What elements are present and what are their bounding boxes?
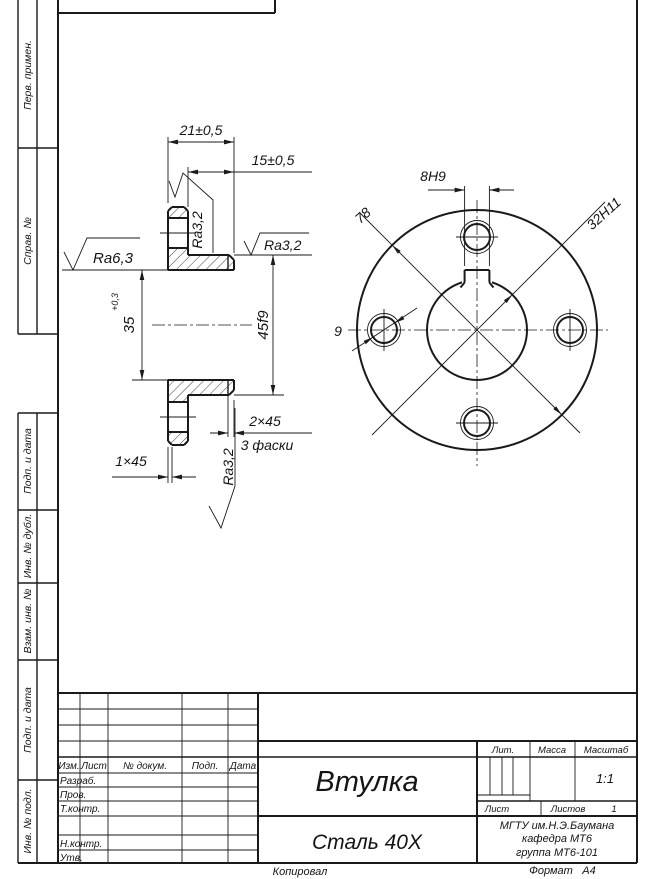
sheets-value: 1 [611,804,616,815]
roughness-hub: Ra3,2 [264,237,302,253]
sidebar-label: Справ. № [22,217,34,265]
format-value: А4 [581,865,595,877]
hatch-band-top [168,248,234,270]
title-block-text: Изм. Лист № докум. Подп. Дата Разраб. Пр… [58,745,629,878]
dim-bore-fit: 32H11 [583,194,624,233]
scale-value: 1:1 [596,771,614,786]
dim-bore-tolerance: +0,3 [110,293,120,311]
drawing-sheet: Перв. примен. Справ. № Подп. и дата Инв.… [0,0,647,879]
dim-chamfer-left: 1×45 [115,453,147,469]
copied-label: Копировал [273,866,328,878]
gost-drawing: Перв. примен. Справ. № Подп. и дата Инв.… [0,0,647,879]
sheet-label: Лист [484,804,510,815]
col-list: Лист [80,761,107,772]
format-label: Формат [529,865,573,877]
sidebar-label: Перв. примен. [22,40,34,110]
row-prov: Пров. [60,790,86,801]
sheets-label: Листов [550,804,586,815]
col-izm: Изм. [58,761,79,772]
scale-label: Масштаб [584,745,629,756]
row-nkontr: Н.контр. [60,839,102,850]
sidebar-label: Подп. и дата [22,687,34,753]
dim-chamfer-right: 2×45 [248,413,281,429]
row-tkontr: Т.контр. [60,804,100,815]
mass-label: Масса [538,745,566,756]
dim-hole-diameter: 9 [334,323,342,339]
dim-width-total: 21±0,5 [179,122,223,138]
dim-hub-length: 15±0,5 [252,152,295,168]
row-utv: Утв. [59,853,83,864]
front-view: 8H9 78 32H11 9 [334,168,624,466]
roughness-keyway: Ra3,2 [189,211,205,249]
part-name: Втулка [315,766,418,798]
col-data: Дата [229,761,257,772]
org-line-1: МГТУ им.Н.Э.Баумана [500,820,615,832]
roughness-left: Ra6,3 [93,250,134,267]
lit-label: Лит. [491,745,514,756]
sidebar-label: Инв. № подл. [22,788,34,853]
dim-hub-diameter: 45f9 [255,310,272,340]
sheet-frame [18,0,637,863]
dim-keyway-width: 8H9 [420,168,446,184]
hatch-band-bottom [168,380,234,402]
col-docnum: № докум. [123,761,167,772]
dim-chamfer-note: 3 фаски [241,437,294,453]
roughness-bore: Ra3,2 [220,448,236,486]
dim-bore-diameter: 35 [121,316,138,333]
material: Сталь 40Х [312,831,423,854]
sidebar-label: Взам. инв. № [22,589,34,654]
sidebar-label: Инв. № дубл. [22,514,34,579]
sidebar-labels: Перв. примен. Справ. № Подп. и дата Инв.… [22,40,34,853]
front-view-arrows [364,188,562,415]
col-podp: Подп. [192,761,219,772]
org-line-3: группа МТ6-101 [516,847,598,859]
section-view: 21±0,5 15±0,5 35 +0,3 45f9 2×45 3 фаски … [62,122,312,528]
sidebar-label: Подп. и дата [22,428,34,494]
row-razrab: Разраб. [60,775,96,787]
org-line-2: кафедра МТ6 [522,833,593,845]
